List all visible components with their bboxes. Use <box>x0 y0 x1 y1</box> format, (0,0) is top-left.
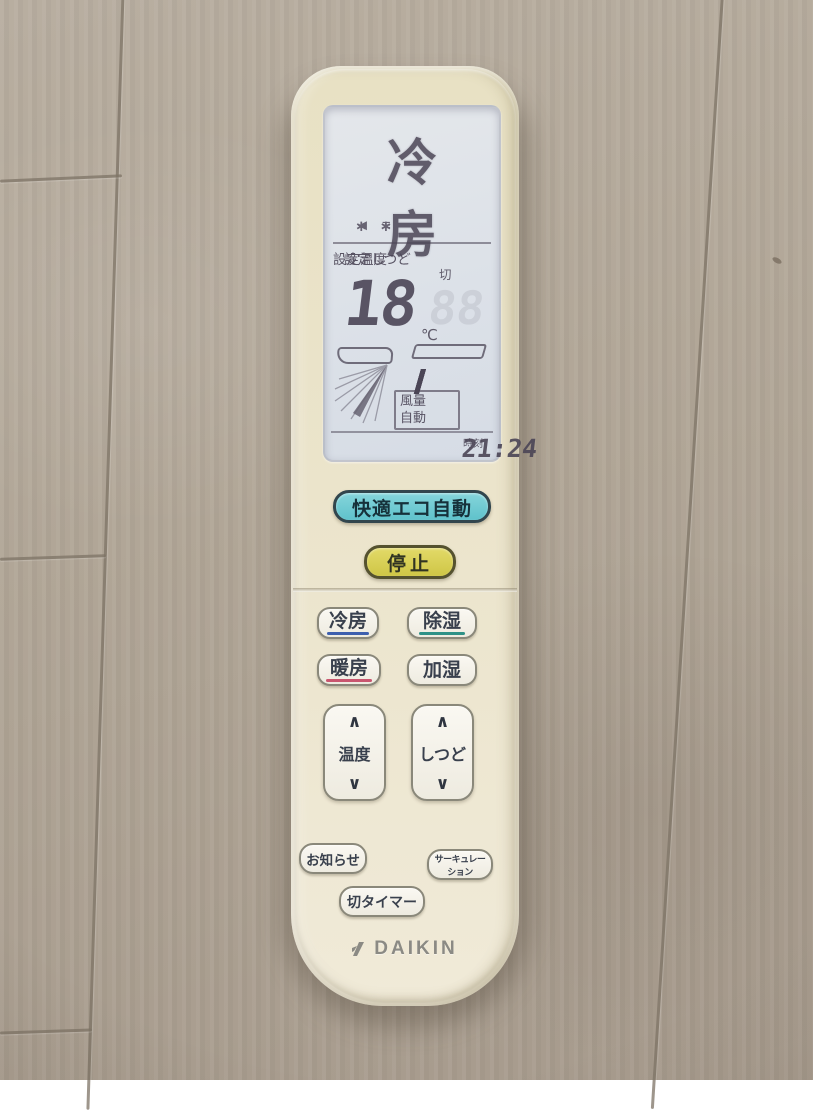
heat-label: 暖房 <box>330 659 368 678</box>
stop-button[interactable]: 停止 <box>364 545 456 579</box>
cool-label: 冷房 <box>329 612 367 631</box>
floor-plank-seam <box>0 554 106 561</box>
eco-auto-button[interactable]: 快適エコ自動 <box>333 490 491 523</box>
humidity-rocker-label: しつど <box>419 741 466 765</box>
humidify-label: 加湿 <box>423 661 461 680</box>
wood-knot <box>771 256 782 265</box>
lcd-divider <box>331 431 493 433</box>
chevron-up-icon[interactable]: ∧ <box>436 713 450 730</box>
cool-mode-button[interactable]: 冷房 <box>317 607 379 639</box>
lcd-divider <box>333 242 491 244</box>
dry-label: 除湿 <box>423 612 461 631</box>
fan-mode-value: 自動 <box>400 410 454 427</box>
floor-plank-seam <box>651 0 724 1109</box>
daikin-logo: DAIKIN <box>291 938 519 960</box>
daikin-logo-mark-icon <box>352 942 369 957</box>
chevron-down-icon[interactable]: ∨ <box>348 775 362 792</box>
photo-scene: 冷房 ◄≡∗∗ 設定温度設定しつど 切 18 ℃ 88 <box>0 0 813 1080</box>
temperature-rocker[interactable]: ∧ 温度 ∨ <box>323 704 386 801</box>
humidify-mode-button[interactable]: 加湿 <box>407 654 477 686</box>
set-humidity-label: 設定しつど <box>344 248 411 268</box>
daikin-logo-text: DAIKIN <box>374 938 457 960</box>
lcd-mode-text: 冷房 <box>325 123 499 267</box>
heat-mode-button[interactable]: 暖房 <box>317 654 381 686</box>
chevron-down-icon[interactable]: ∨ <box>436 775 450 792</box>
fan-label: 風量 <box>400 393 454 410</box>
time-label: 時刻 <box>463 439 483 450</box>
floor-plank-seam <box>0 174 122 182</box>
chevron-up-icon[interactable]: ∧ <box>348 713 362 730</box>
off-timer-button[interactable]: 切タイマー <box>339 886 425 917</box>
dry-underline <box>419 632 465 635</box>
clock-area: 21:24時刻 <box>462 434 483 452</box>
ac-unit-icon <box>336 347 393 364</box>
sparkle-icon: ∗∗ <box>355 217 404 235</box>
temp-rocker-label: 温度 <box>338 741 370 765</box>
dry-mode-button[interactable]: 除湿 <box>407 607 477 639</box>
heat-underline <box>326 679 372 682</box>
humidity-ghost-digits: 88 <box>426 285 487 331</box>
daikin-remote-body: 冷房 ◄≡∗∗ 設定温度設定しつど 切 18 ℃ 88 <box>291 66 519 1006</box>
fan-mode-box: 風量 自動 <box>394 390 460 430</box>
circulation-button[interactable]: サーキュレーション <box>427 849 493 880</box>
notice-button[interactable]: お知らせ <box>299 843 367 874</box>
slide-cover-seam <box>293 588 517 592</box>
humidity-rocker[interactable]: ∧ しつど ∨ <box>411 704 474 801</box>
floor-plank-seam <box>0 1028 92 1034</box>
temperature-value: 18 <box>341 273 419 335</box>
cool-underline <box>327 632 369 635</box>
ac-unit-icon <box>411 344 487 359</box>
lcd-display: 冷房 ◄≡∗∗ 設定温度設定しつど 切 18 ℃ 88 <box>323 105 501 462</box>
